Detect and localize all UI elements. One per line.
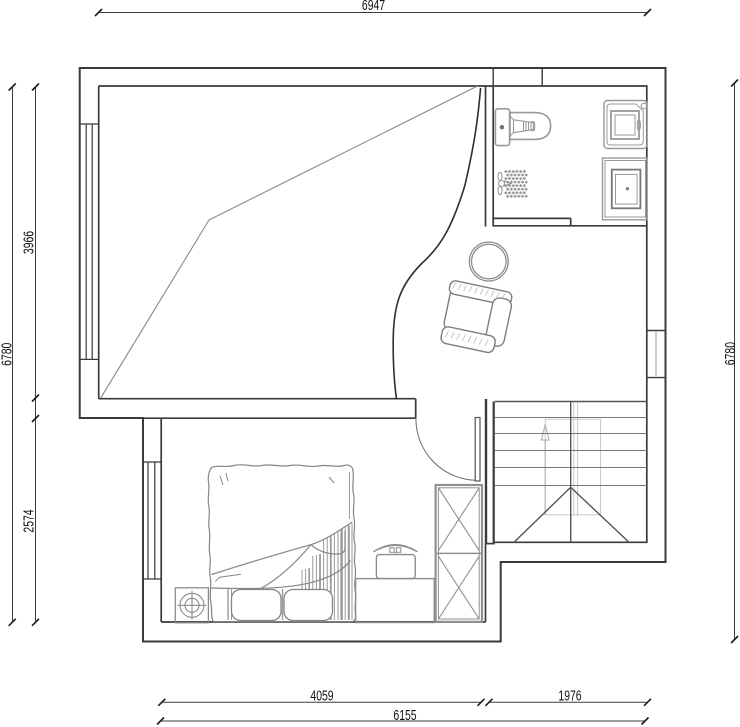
svg-text:1976: 1976 (558, 689, 581, 705)
svg-text:6155: 6155 (393, 708, 416, 724)
svg-text:4059: 4059 (310, 689, 333, 705)
svg-text:6947: 6947 (362, 0, 385, 14)
svg-text:6780: 6780 (723, 342, 739, 365)
svg-text:6780: 6780 (0, 343, 16, 366)
svg-text:3966: 3966 (21, 231, 37, 254)
svg-text:2574: 2574 (21, 509, 37, 532)
